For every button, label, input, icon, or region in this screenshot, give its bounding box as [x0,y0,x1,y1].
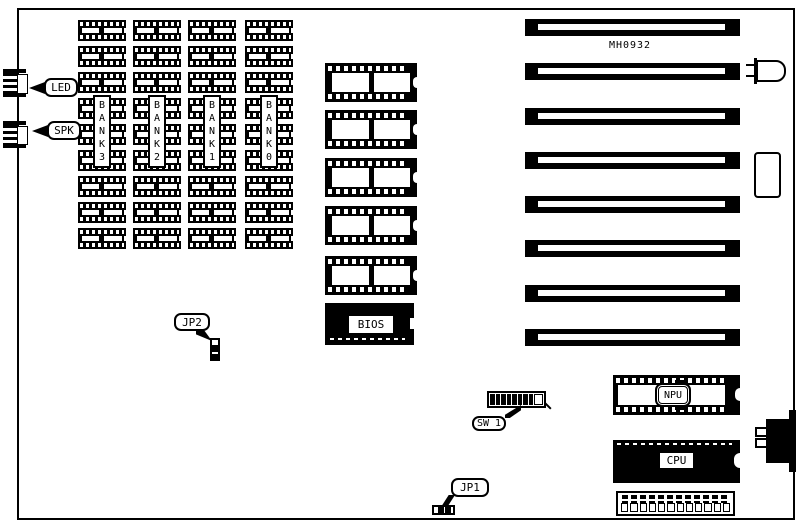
ram-chip [78,20,126,41]
power-pin-cell [695,503,702,512]
ram-chip [245,20,293,41]
cpu-chip: CPU [613,440,740,483]
power-pin-cell [630,503,637,512]
eprom-chip [325,256,417,295]
bios-label: BIOS [347,314,395,335]
bios-chip: BIOS [325,303,414,345]
spk-connector-bottom [3,144,26,148]
bios-notch [410,318,414,329]
sw1-segment-on [518,394,523,405]
power-pin-cell [640,503,647,512]
crystal-oscillator [756,60,786,82]
power-pin-cell [686,503,693,512]
motherboard-diagram: BANK3 BANK2 BANK1 BANK0 BIOS MH0932 NPU … [0,0,803,527]
power-connector [616,491,735,516]
sw1-callout: SW 1 [472,416,506,431]
sw1-segment-on [523,394,528,405]
capacitor [754,152,781,198]
jp2-callout-label: JP2 [182,316,202,329]
expansion-slot [525,285,740,302]
keyboard-connector [766,419,791,463]
spk-connector-body [17,126,28,145]
ram-chip [133,46,181,67]
jp1-callout-label: JP1 [460,481,480,494]
power-pin-cell [621,503,628,512]
power-connector-cells [621,503,730,512]
led-connector [3,73,18,93]
ram-chip [133,176,181,197]
power-connector-pins [622,495,729,499]
eprom-chip [325,158,417,197]
sw1-segment-on [507,394,512,405]
power-pin-cell [704,503,711,512]
bios-socket-dashes [330,338,405,340]
expansion-slot [525,240,740,257]
ram-chip [133,228,181,249]
expansion-slot [525,196,740,213]
npu-label: NPU [658,386,688,404]
led-callout-label: LED [51,81,71,94]
ram-chip [245,202,293,223]
bank0-label: BANK0 [260,95,278,168]
led-connector-body [17,74,28,94]
ram-chip [78,228,126,249]
ram-chip [188,20,236,41]
ram-chip [78,176,126,197]
sw1-callout-label: SW 1 [477,418,501,429]
eprom-chip [325,206,417,245]
cpu-socket-dashes [617,443,732,445]
keyboard-connector-pin-bottom [755,438,768,448]
power-pin-cell [649,503,656,512]
ram-chip [245,228,293,249]
bank3-label: BANK3 [93,95,111,168]
led-callout: LED [44,78,78,97]
ram-chip [188,72,236,93]
ram-chip [188,46,236,67]
jp1-callout: JP1 [451,478,489,497]
ram-chip [78,46,126,67]
sw1-segment-on [501,394,506,405]
ram-chip [133,72,181,93]
eprom-chip [325,110,417,149]
power-pin-cell [658,503,665,512]
sw1-segment-on [490,394,495,405]
eprom-chip [325,63,417,102]
expansion-slot [525,63,740,80]
npu-pins-bottom [616,407,728,412]
jp2-jumper [210,338,220,361]
expansion-slot [525,152,740,169]
ram-chip [78,202,126,223]
power-pin-cell [714,503,721,512]
sw1-segment-on [496,394,501,405]
ram-chip [188,202,236,223]
ram-chip [245,72,293,93]
expansion-slot [525,329,740,346]
ram-chip [78,72,126,93]
board-code-label: MH0932 [590,40,670,51]
cpu-label: CPU [660,453,693,468]
power-pin-cell [667,503,674,512]
npu-chip: NPU [613,375,740,415]
sw1-segment-on [512,394,517,405]
sw1-segment-off [534,394,543,405]
bank2-label: BANK2 [148,95,166,168]
keyboard-connector-pin-top [755,427,768,437]
ram-chip [133,20,181,41]
spk-callout-label: SPK [54,124,74,137]
ram-chip [188,176,236,197]
led-connector-bottom [3,93,26,97]
power-pin-cell [723,503,730,512]
jp2-callout: JP2 [174,313,210,331]
ram-chip [133,202,181,223]
npu-label-box: NPU [655,383,691,407]
sw1-dip-switch [487,391,546,408]
ram-chip [245,176,293,197]
bank1-label: BANK1 [203,95,221,168]
npu-notch [735,388,740,401]
power-pin-cell [677,503,684,512]
cpu-notch [734,453,740,468]
ram-chip [188,228,236,249]
expansion-slot [525,19,740,36]
sw1-segment-on [529,394,534,405]
ram-chip [245,46,293,67]
spk-callout: SPK [47,121,81,140]
expansion-slot [525,108,740,125]
spk-connector [3,125,18,144]
sw1-switch-segments [490,394,543,405]
